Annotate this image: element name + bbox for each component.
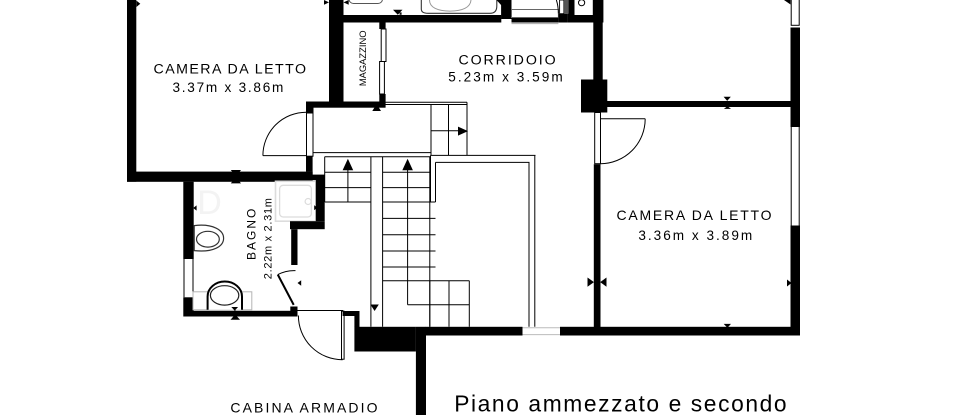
- svg-text:D: D: [197, 184, 222, 222]
- svg-text:3.37m x 3.86m: 3.37m x 3.86m: [172, 80, 285, 95]
- svg-text:Piano ammezzato e secondo: Piano ammezzato e secondo: [454, 391, 788, 415]
- svg-text:CAMERA DA LETTO: CAMERA DA LETTO: [617, 207, 774, 223]
- svg-text:2.22m x 2.31m: 2.22m x 2.31m: [263, 197, 275, 279]
- svg-text:CAMERA DA LETTO: CAMERA DA LETTO: [154, 62, 308, 78]
- svg-text:5.23m x 3.59m: 5.23m x 3.59m: [448, 70, 565, 85]
- svg-text:BAGNO: BAGNO: [245, 207, 259, 260]
- svg-text:CORRIDOIO: CORRIDOIO: [458, 53, 557, 69]
- svg-text:3.36m x 3.89m: 3.36m x 3.89m: [638, 228, 754, 243]
- svg-text:MAGAZZINO: MAGAZZINO: [357, 30, 368, 86]
- svg-text:CABINA ARMADIO: CABINA ARMADIO: [230, 400, 379, 415]
